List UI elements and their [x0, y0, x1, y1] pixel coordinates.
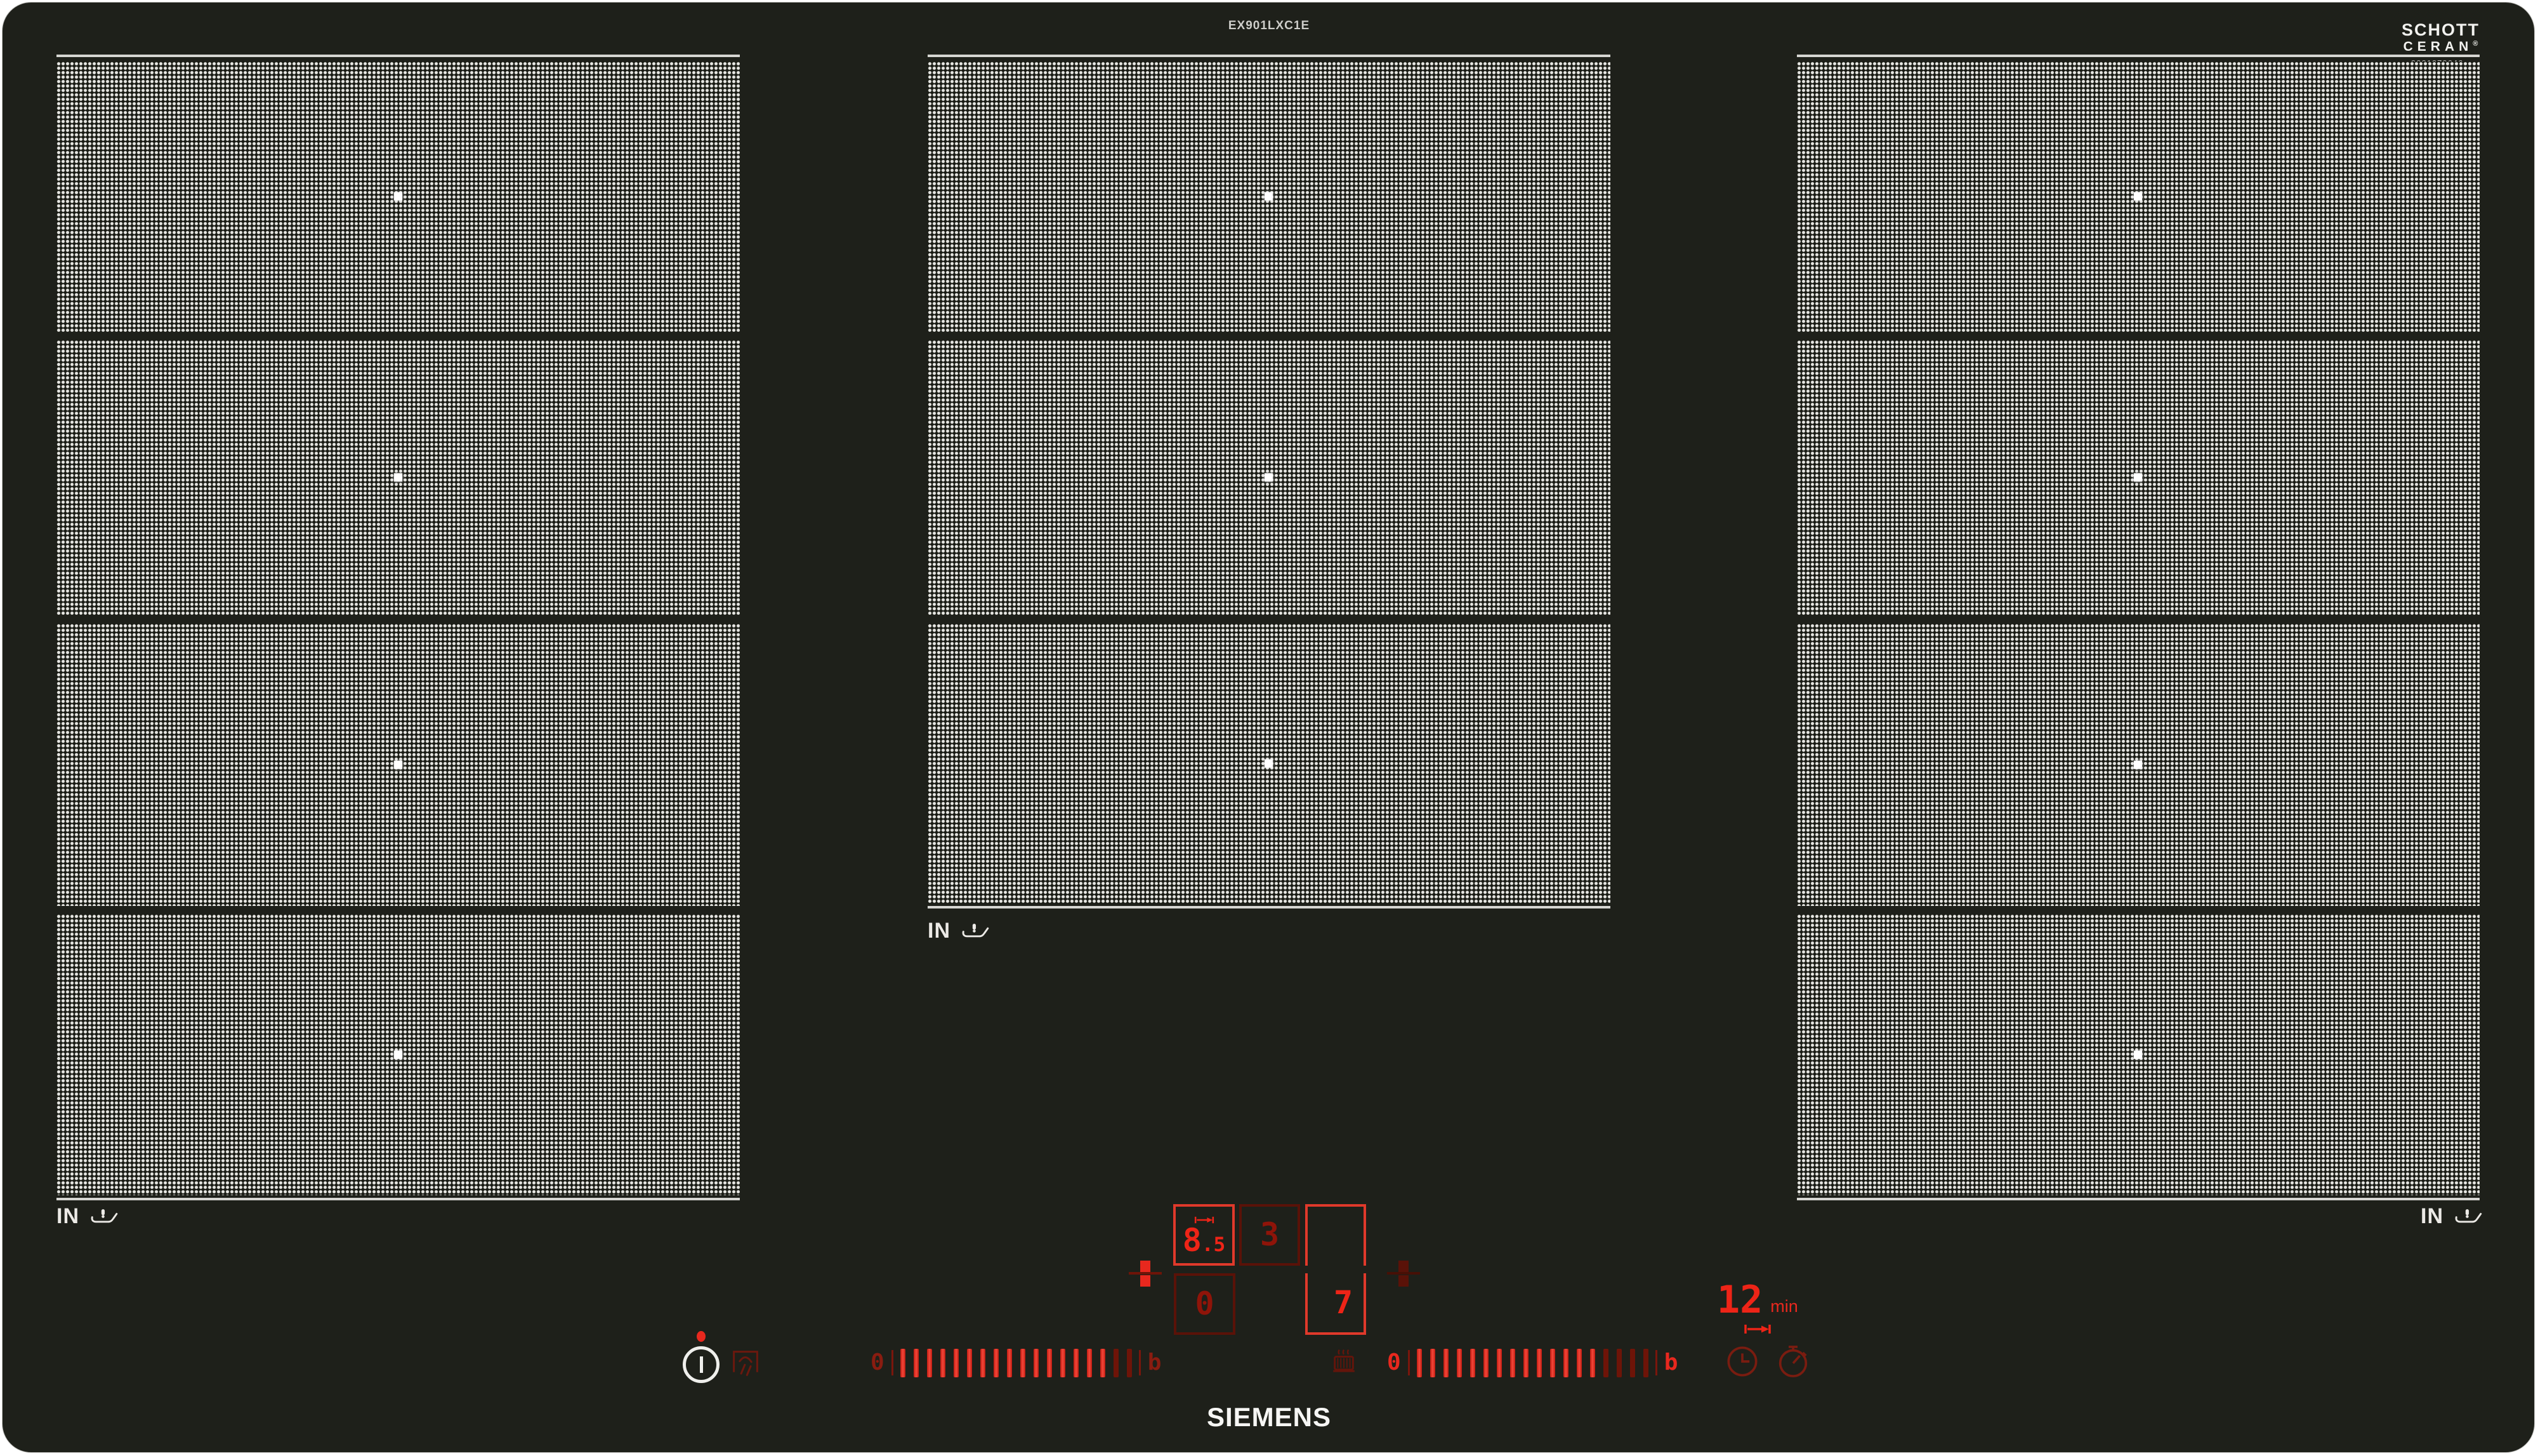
- timer-value: 12: [1717, 1284, 1763, 1316]
- power-level-value: 7: [1334, 1289, 1353, 1316]
- cooking-zone: [56, 914, 740, 1195]
- slider-boost-label: b: [1148, 1351, 1162, 1374]
- power-slider-right[interactable]: 0 b: [1387, 1346, 1678, 1379]
- cooking-zone: [1797, 340, 2480, 615]
- slider-zero-label: 0: [1387, 1351, 1401, 1374]
- slider-bar[interactable]: [1577, 1349, 1582, 1377]
- pan-sensor-icon: [89, 1209, 119, 1224]
- slider-bar[interactable]: [1590, 1349, 1595, 1377]
- clock-icon[interactable]: [1725, 1344, 1760, 1379]
- zone-display-center[interactable]: 3: [1239, 1204, 1300, 1266]
- slider-bar[interactable]: [1047, 1349, 1052, 1377]
- zone-center-marker: [394, 473, 402, 482]
- slider-bar[interactable]: [994, 1349, 999, 1377]
- induction-label: IN: [928, 919, 950, 943]
- cooking-zone: [1797, 914, 2480, 1195]
- slider-divider: [1139, 1350, 1141, 1375]
- power-slider-left[interactable]: 0 b: [871, 1346, 1161, 1379]
- slider-bar[interactable]: [1483, 1349, 1489, 1377]
- zone-center-marker: [1265, 759, 1273, 768]
- slider-bar[interactable]: [1034, 1349, 1039, 1377]
- slider-bar[interactable]: [1430, 1349, 1435, 1377]
- zone-column-right: [1797, 55, 2480, 1200]
- cooking-zone: [56, 624, 740, 906]
- slider-bar[interactable]: [1114, 1349, 1119, 1377]
- power-icon: [700, 1356, 703, 1373]
- zone-center-marker: [2134, 761, 2142, 769]
- slider-bar[interactable]: [1127, 1349, 1132, 1377]
- zone-center-marker: [2134, 473, 2142, 482]
- zone-display-right-bottom[interactable]: 7: [1305, 1273, 1366, 1335]
- zone-display-right-top[interactable]: [1305, 1204, 1366, 1266]
- zone-connect-indicator-right: [1387, 1261, 1420, 1287]
- induction-label: IN: [56, 1204, 79, 1229]
- slider-bar[interactable]: [980, 1349, 985, 1377]
- slider-bar[interactable]: [1087, 1349, 1092, 1377]
- pan-sensor-icon: [961, 923, 990, 939]
- slider-bar[interactable]: [954, 1349, 959, 1377]
- slider-bar[interactable]: [1563, 1349, 1568, 1377]
- induction-badge-center: IN: [928, 919, 990, 943]
- slider-level-bars[interactable]: [1417, 1349, 1648, 1377]
- slider-bar[interactable]: [1074, 1349, 1079, 1377]
- slider-zero-label: 0: [871, 1351, 884, 1374]
- zone-display-flex-bottom[interactable]: 0: [1174, 1273, 1235, 1335]
- slider-bar[interactable]: [967, 1349, 972, 1377]
- slider-bar[interactable]: [1470, 1349, 1475, 1377]
- slider-bar[interactable]: [1550, 1349, 1555, 1377]
- power-level-value: 8: [1183, 1227, 1202, 1254]
- slider-bar[interactable]: [1603, 1349, 1608, 1377]
- slider-bar[interactable]: [1417, 1349, 1422, 1377]
- zone-center-marker: [1265, 473, 1273, 482]
- slider-bar[interactable]: [1457, 1349, 1462, 1377]
- cooking-zone: [56, 62, 740, 332]
- slider-divider: [1655, 1350, 1657, 1375]
- cooking-zone: [56, 340, 740, 615]
- slider-bar[interactable]: [940, 1349, 945, 1377]
- zone-center-marker: [394, 761, 402, 769]
- power-indicator-dot: [697, 1331, 706, 1342]
- slider-bar[interactable]: [900, 1349, 905, 1377]
- slider-bar[interactable]: [1630, 1349, 1635, 1377]
- brand-logo: SIEMENS: [0, 1402, 2538, 1433]
- slider-bar[interactable]: [1007, 1349, 1012, 1377]
- slider-divider: [1408, 1350, 1410, 1375]
- slider-bar[interactable]: [1523, 1349, 1529, 1377]
- bridge-icon: [1744, 1323, 1772, 1335]
- slider-bar[interactable]: [1617, 1349, 1622, 1377]
- induction-badge-left: IN: [56, 1204, 119, 1229]
- power-level-fraction: .5: [1202, 1236, 1225, 1254]
- zone-display-flex-top[interactable]: 8.5: [1173, 1204, 1235, 1266]
- zone-center-marker: [1265, 192, 1273, 200]
- slider-bar[interactable]: [1510, 1349, 1515, 1377]
- schott-ceran-logo: SCHOTT CERAN®: [2402, 22, 2480, 53]
- power-button[interactable]: [683, 1346, 720, 1383]
- slider-bar[interactable]: [1497, 1349, 1502, 1377]
- cooking-zone: [1797, 62, 2480, 332]
- timer-display: 12 min: [1717, 1284, 1798, 1316]
- cooking-zone: [1797, 624, 2480, 906]
- slider-bar[interactable]: [1100, 1349, 1105, 1377]
- slider-bar[interactable]: [927, 1349, 932, 1377]
- slider-bar[interactable]: [1020, 1349, 1025, 1377]
- kitchen-timer-icon[interactable]: [1775, 1344, 1811, 1379]
- zone-column-center: [928, 55, 1610, 908]
- induction-label: IN: [2421, 1204, 2443, 1229]
- schott-logo-line1: SCHOTT: [2402, 22, 2480, 39]
- zone-connect-indicator-left: [1129, 1261, 1162, 1287]
- wipe-protection-icon[interactable]: [731, 1349, 760, 1378]
- zone-center-marker: [394, 192, 402, 200]
- model-number: EX901LXC1E: [0, 19, 2538, 33]
- schott-logo-line2: CERAN: [2403, 39, 2473, 54]
- cooking-zone: [928, 624, 1610, 903]
- slider-bar[interactable]: [1443, 1349, 1449, 1377]
- power-level-value: 3: [1260, 1221, 1279, 1249]
- slider-bar[interactable]: [1537, 1349, 1542, 1377]
- keep-warm-icon[interactable]: [1329, 1348, 1359, 1378]
- zone-center-marker: [394, 1051, 402, 1059]
- induction-badge-right: IN: [2421, 1204, 2483, 1229]
- registered-mark: ®: [2473, 40, 2478, 48]
- zone-center-marker: [2134, 192, 2142, 200]
- pan-sensor-icon: [2454, 1209, 2483, 1224]
- slider-bar[interactable]: [1060, 1349, 1065, 1377]
- zone-column-left: [56, 55, 740, 1200]
- cooking-zone: [928, 62, 1610, 332]
- power-level-value: 0: [1195, 1290, 1214, 1318]
- cooking-zone: [928, 340, 1610, 615]
- slider-bar[interactable]: [914, 1349, 919, 1377]
- slider-divider: [891, 1350, 893, 1375]
- slider-bar[interactable]: [1643, 1349, 1648, 1377]
- zone-center-marker: [2134, 1051, 2142, 1059]
- slider-boost-label: b: [1664, 1351, 1678, 1374]
- slider-level-bars[interactable]: [900, 1349, 1132, 1377]
- timer-unit: min: [1770, 1298, 1798, 1316]
